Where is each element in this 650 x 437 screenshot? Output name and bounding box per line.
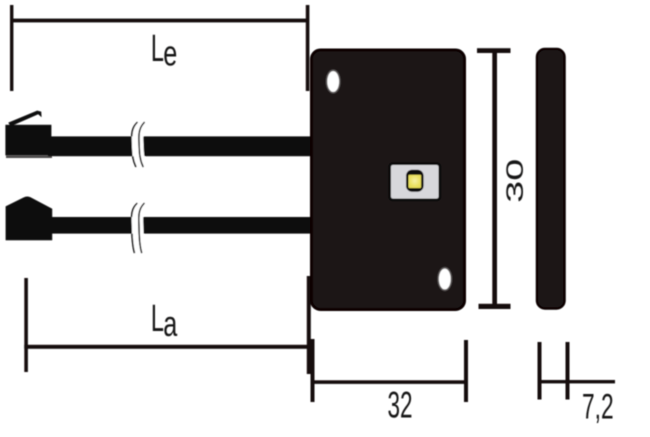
- svg-text:30: 30: [502, 159, 529, 203]
- svg-text:a: a: [163, 304, 178, 345]
- svg-text:L: L: [151, 296, 164, 339]
- svg-text:32: 32: [388, 385, 413, 426]
- svg-text:7,2: 7,2: [582, 387, 614, 426]
- svg-text:L: L: [151, 26, 164, 69]
- svg-text:e: e: [163, 33, 177, 74]
